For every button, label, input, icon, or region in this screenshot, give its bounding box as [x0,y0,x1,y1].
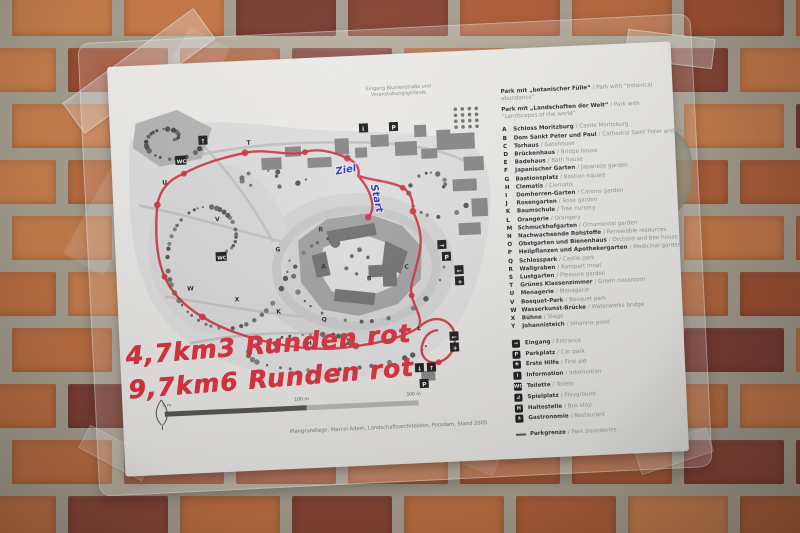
scale-label: 0 m [162,403,171,408]
map-marker: X [235,296,240,303]
symbol-icon: WC [514,383,522,391]
legend-intro-line: Park mit „Landschaften der Welt“ / Park … [501,100,663,121]
symbol-icon: → [512,339,520,347]
park-map-sheet: Eingang Blumenstraße und Veranstaltungsg… [107,41,689,476]
info-icon: i [362,126,364,133]
legend-intro-line: Park mit „botanischer Fülle“ / Park with… [500,82,662,103]
map-marker: V [215,216,220,223]
photo-of-park-map-on-brick-wall: Eingang Blumenstraße und Veranstaltungsg… [0,0,800,533]
up-arrow-icon: ↑ [429,365,434,372]
map-marker: G [275,246,280,253]
map-credit: Plangrundlage: Marcel Adam, Landschaftsa… [264,419,514,436]
map-marker: L [417,325,421,332]
down-arrow-icon: ↓ [417,366,422,373]
map-marker: B [367,275,372,282]
formal-garden-dots [453,106,479,129]
map-marker: A [321,263,326,270]
symbol-icon: ⋔ [515,415,523,423]
left-arrow-icon: ← [451,334,456,341]
symbol-icon: H [515,404,523,412]
first-aid-icon: + [452,345,457,352]
symbol-icon: i [513,372,521,380]
legend-boundary-row: Parkgrenze / Park boundaries [516,422,678,440]
symbol-icon: ✚ [513,361,521,369]
symbol-icon: P [512,350,520,358]
left-arrow-icon: ← [456,268,461,275]
scale-bar-light-segment [307,400,419,410]
legend-intro: Park mit „botanischer Fülle“ / Park with… [500,82,663,121]
scale-bar-dark-segment [165,405,307,416]
scale-label: 300 m [406,392,421,398]
legend-symbol-list: → Eingang / Entrance P Parkplatz / Car p… [512,331,678,425]
wc-icon: WC [217,255,227,261]
boundary-line-icon [516,434,526,436]
map-marker: K [276,308,281,315]
map-legend: Park mit „botanischer Fülle“ / Park with… [500,82,678,441]
symbol-icon: ⊿ [514,393,522,401]
map-marker: U [162,179,167,186]
right-arrow-icon: → [439,242,444,249]
up-arrow-icon: ↑ [200,138,205,145]
first-aid-icon: + [457,279,462,286]
map-marker: R [318,226,323,233]
map-marker: W [187,285,194,292]
wc-icon: WC [177,159,187,165]
legend-item-list: A Schloss Moritzburg / Castle Moritzburg… [502,119,673,331]
scale-label: 100 m [294,397,309,403]
